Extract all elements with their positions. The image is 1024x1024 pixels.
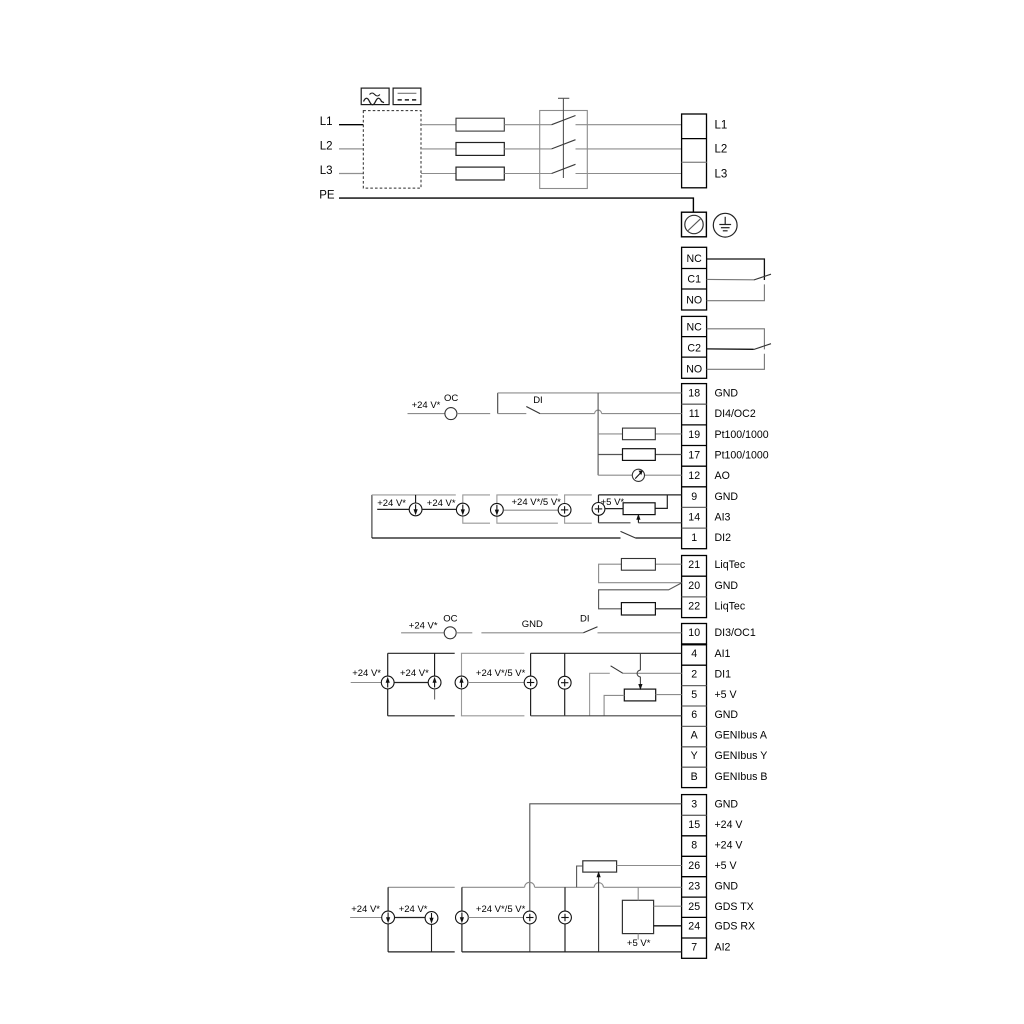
svg-text:L1: L1 xyxy=(320,116,333,128)
svg-text:+24 V*: +24 V* xyxy=(409,620,438,631)
svg-text:2: 2 xyxy=(691,668,697,680)
svg-text:AI1: AI1 xyxy=(715,648,731,660)
svg-text:3: 3 xyxy=(691,799,697,811)
svg-text:+24 V*: +24 V* xyxy=(352,668,381,679)
svg-text:+24 V*: +24 V* xyxy=(351,904,380,915)
svg-text:GDS TX: GDS TX xyxy=(715,901,754,913)
svg-text:GDS RX: GDS RX xyxy=(715,921,756,933)
svg-text:5: 5 xyxy=(691,689,697,701)
svg-text:+24 V*: +24 V* xyxy=(400,668,429,679)
svg-text:+24 V*/5 V*: +24 V*/5 V* xyxy=(476,904,526,915)
svg-text:+5 V: +5 V xyxy=(715,860,738,872)
svg-text:7: 7 xyxy=(691,942,697,954)
svg-text:20: 20 xyxy=(688,580,700,592)
svg-text:+24 V: +24 V xyxy=(715,819,744,831)
svg-text:AI2: AI2 xyxy=(715,942,731,954)
svg-text:B: B xyxy=(691,771,698,783)
svg-text:GENIbus A: GENIbus A xyxy=(715,729,768,741)
svg-text:DI: DI xyxy=(533,395,543,406)
svg-text:DI1: DI1 xyxy=(715,668,732,680)
svg-text:C1: C1 xyxy=(687,274,701,286)
svg-text:+24 V: +24 V xyxy=(715,840,744,852)
svg-text:GND: GND xyxy=(715,388,739,400)
svg-text:+24 V*/5 V*: +24 V*/5 V* xyxy=(512,497,562,508)
svg-text:GND: GND xyxy=(715,580,739,592)
svg-text:4: 4 xyxy=(691,648,697,660)
svg-text:+24 V*: +24 V* xyxy=(377,498,406,509)
svg-text:+5 V: +5 V xyxy=(715,689,738,701)
svg-text:L1: L1 xyxy=(715,120,728,132)
svg-text:OC: OC xyxy=(444,393,458,404)
svg-text:+24 V*/5 V*: +24 V*/5 V* xyxy=(476,668,526,679)
svg-text:10: 10 xyxy=(688,627,700,639)
svg-text:6: 6 xyxy=(691,709,697,721)
svg-text:GND: GND xyxy=(522,619,543,630)
svg-text:+5 V*: +5 V* xyxy=(601,497,625,508)
svg-text:23: 23 xyxy=(688,881,700,893)
svg-text:+24 V*: +24 V* xyxy=(399,904,428,915)
svg-text:Pt100/1000: Pt100/1000 xyxy=(715,450,769,462)
svg-text:14: 14 xyxy=(688,511,700,523)
svg-text:+24 V*: +24 V* xyxy=(412,400,441,411)
svg-text:GND: GND xyxy=(715,799,739,811)
svg-text:DI2: DI2 xyxy=(715,532,732,544)
svg-text:DI4/OC2: DI4/OC2 xyxy=(715,408,756,420)
svg-text:1: 1 xyxy=(691,532,697,544)
svg-text:L3: L3 xyxy=(715,168,728,180)
svg-text:24: 24 xyxy=(688,921,700,933)
svg-text:L3: L3 xyxy=(320,165,333,177)
svg-text:OC: OC xyxy=(443,614,457,625)
svg-text:25: 25 xyxy=(688,901,700,913)
svg-text:15: 15 xyxy=(688,819,700,831)
svg-text:PE: PE xyxy=(319,190,335,202)
svg-text:GND: GND xyxy=(715,709,739,721)
svg-text:11: 11 xyxy=(689,408,700,420)
svg-text:AO: AO xyxy=(715,470,730,482)
svg-text:GENIbus Y: GENIbus Y xyxy=(715,750,768,762)
svg-text:GND: GND xyxy=(715,881,739,893)
svg-text:26: 26 xyxy=(688,860,700,872)
svg-text:NC: NC xyxy=(687,253,703,265)
svg-text:21: 21 xyxy=(688,559,700,571)
svg-text:22: 22 xyxy=(688,601,700,613)
svg-text:NO: NO xyxy=(686,363,702,375)
svg-text:C2: C2 xyxy=(687,342,701,354)
svg-text:GND: GND xyxy=(715,491,739,503)
svg-text:NC: NC xyxy=(687,322,703,334)
svg-text:19: 19 xyxy=(688,429,700,441)
svg-text:17: 17 xyxy=(688,450,700,462)
svg-text:DI3/OC1: DI3/OC1 xyxy=(715,627,756,639)
svg-text:A: A xyxy=(691,729,699,741)
svg-text:18: 18 xyxy=(688,388,700,400)
svg-text:L2: L2 xyxy=(320,140,333,152)
svg-text:Y: Y xyxy=(691,750,698,762)
svg-text:9: 9 xyxy=(691,491,697,503)
svg-text:GENIbus B: GENIbus B xyxy=(715,771,768,783)
svg-text:AI3: AI3 xyxy=(715,511,731,523)
svg-text:LiqTec: LiqTec xyxy=(715,601,746,613)
svg-text:+24 V*: +24 V* xyxy=(427,498,456,509)
svg-text:DI: DI xyxy=(580,614,590,625)
svg-text:Pt100/1000: Pt100/1000 xyxy=(715,429,769,441)
svg-text:L2: L2 xyxy=(715,144,728,156)
svg-text:12: 12 xyxy=(688,470,700,482)
svg-text:LiqTec: LiqTec xyxy=(715,559,746,571)
svg-text:+5 V*: +5 V* xyxy=(627,938,651,949)
svg-text:8: 8 xyxy=(691,840,697,852)
svg-text:NO: NO xyxy=(686,295,702,307)
